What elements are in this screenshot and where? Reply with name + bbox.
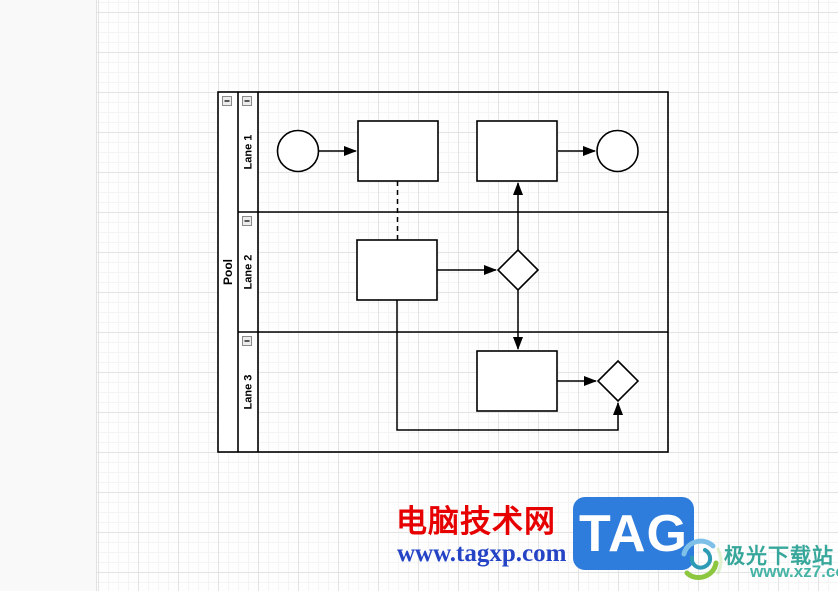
lane3-label: Lane 3 (243, 375, 255, 410)
lane1-label: Lane 1 (243, 135, 255, 170)
task3-box[interactable] (357, 240, 437, 300)
task4-box[interactable] (477, 351, 557, 411)
collapse-lane3-button[interactable] (243, 337, 252, 346)
collapse-pool-button[interactable] (223, 97, 232, 106)
tag-logo-text: TAG (579, 504, 688, 564)
collapse-lane2-button[interactable] (243, 217, 252, 226)
collapse-lane1-button[interactable] (243, 97, 252, 106)
aurora-swirl-icon (674, 533, 726, 585)
lane2-label: Lane 2 (243, 255, 255, 290)
task1-box[interactable] (358, 121, 438, 181)
end-event-circle[interactable] (597, 131, 638, 172)
watermark-aurora-url: www.xz7.com (750, 562, 838, 582)
watermark-site-url: www.tagxp.com (397, 540, 566, 568)
pool-label: Pool (221, 259, 235, 285)
gateway2-diamond[interactable] (598, 361, 638, 401)
gateway1-diamond[interactable] (498, 250, 538, 290)
start-event-circle[interactable] (278, 131, 319, 172)
watermark-site-title: 电脑技术网 (396, 496, 556, 541)
task2-box[interactable] (477, 121, 557, 181)
